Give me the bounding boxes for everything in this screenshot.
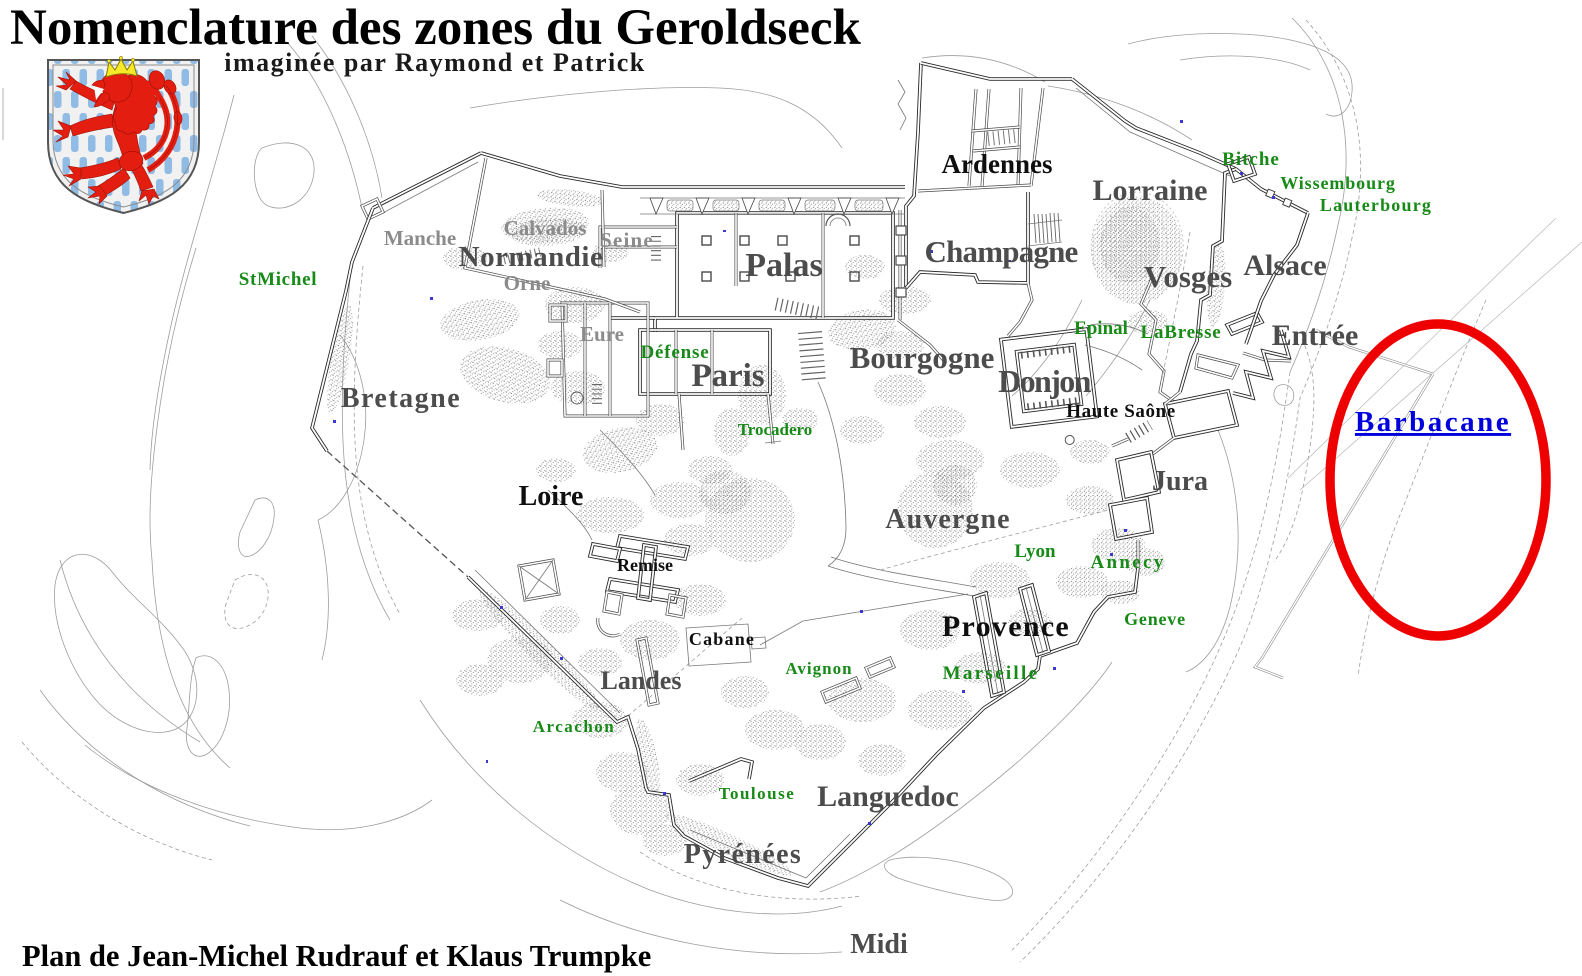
svg-text:Trocadero: Trocadero [738, 420, 813, 439]
svg-text:Bretagne: Bretagne [341, 383, 461, 414]
svg-text:Paris: Paris [691, 358, 764, 394]
svg-text:Lauterbourg: Lauterbourg [1320, 195, 1432, 215]
svg-text:Orne: Orne [504, 271, 551, 295]
svg-text:Lorraine: Lorraine [1093, 174, 1208, 207]
svg-text:Provence: Provence [942, 610, 1070, 643]
svg-text:Midi: Midi [850, 929, 908, 960]
svg-text:Haute Saône: Haute Saône [1066, 401, 1176, 422]
svg-text:Pyrénées: Pyrénées [684, 839, 802, 870]
svg-text:Avignon: Avignon [785, 659, 852, 678]
svg-text:Jura: Jura [1152, 466, 1208, 497]
svg-text:Défense: Défense [641, 342, 710, 363]
svg-text:Palas: Palas [745, 247, 822, 284]
svg-text:Bourgogne: Bourgogne [850, 340, 995, 375]
svg-text:Champagne: Champagne [925, 234, 1078, 269]
svg-text:Marseille: Marseille [943, 663, 1040, 684]
svg-text:Normandie: Normandie [459, 241, 604, 273]
svg-text:Calvados: Calvados [504, 216, 587, 240]
svg-text:Landes: Landes [601, 666, 682, 695]
svg-text:imaginée par Raymond et Patric: imaginée par Raymond et Patrick [224, 48, 646, 77]
svg-text:Barbacane: Barbacane [1355, 406, 1511, 438]
svg-text:Cabane: Cabane [689, 629, 755, 649]
svg-text:Donjon: Donjon [998, 363, 1092, 399]
svg-text:Lyon: Lyon [1014, 541, 1056, 562]
svg-text:Seine: Seine [600, 228, 654, 252]
svg-text:Remise: Remise [617, 555, 673, 575]
svg-text:Alsace: Alsace [1243, 249, 1326, 282]
svg-text:Ardennes: Ardennes [941, 149, 1052, 179]
svg-text:Arcachon: Arcachon [533, 717, 616, 736]
svg-text:Languedoc: Languedoc [817, 780, 959, 813]
svg-text:Loire: Loire [519, 481, 584, 512]
svg-text:Annecy: Annecy [1090, 552, 1165, 573]
svg-text:Vosges: Vosges [1144, 259, 1232, 294]
svg-text:StMichel: StMichel [239, 269, 317, 290]
svg-text:Auvergne: Auvergne [885, 504, 1010, 535]
svg-text:Wissembourg: Wissembourg [1280, 173, 1396, 193]
svg-text:Eure: Eure [580, 322, 624, 346]
svg-text:LaBresse: LaBresse [1141, 322, 1222, 343]
svg-text:Epinal: Epinal [1074, 318, 1128, 339]
svg-text:Geneve: Geneve [1124, 609, 1186, 629]
svg-text:Entrée: Entrée [1272, 319, 1359, 352]
svg-text:Bitche: Bitche [1222, 149, 1280, 170]
svg-text:Plan de Jean-Michel Rudrauf et: Plan de Jean-Michel Rudrauf et Klaus Tru… [22, 939, 651, 973]
svg-text:Manche: Manche [384, 226, 456, 250]
svg-text:Toulouse: Toulouse [719, 784, 796, 803]
